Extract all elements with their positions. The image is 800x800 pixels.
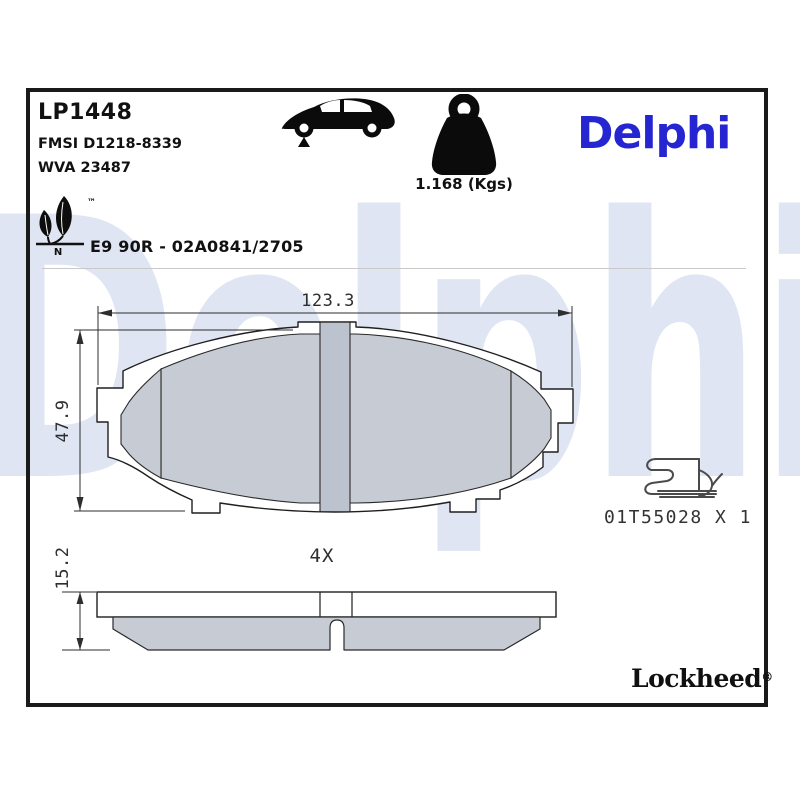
side-view: 15.2 4X (53, 545, 556, 650)
quantity-label: 4X (310, 545, 335, 567)
width-dimension-label: 123.3 (301, 291, 355, 311)
accessory-code: 01T55028 X 1 (604, 507, 752, 528)
lockheed-wordmark: Lockheed (631, 664, 761, 693)
pad-centre-slot (320, 323, 350, 512)
front-view: 123.3 47.9 (53, 291, 573, 513)
side-backing-plate (97, 592, 556, 617)
clip-hook (699, 470, 722, 496)
friction-chamfer-right (511, 371, 551, 478)
thickness-dimension-label: 15.2 (53, 547, 73, 590)
registered-symbol: ® (761, 670, 773, 684)
clip-body (645, 459, 716, 494)
datasheet-page: Delphi LP1448 FMSI D1218-8339 WVA 23487 … (0, 0, 800, 800)
lockheed-logo: Lockheed® (631, 664, 773, 693)
height-dimension-label: 47.9 (53, 400, 73, 443)
technical-drawing: 123.3 47.9 (26, 88, 768, 707)
side-friction-material (113, 617, 540, 650)
accessory-clip (645, 459, 722, 497)
